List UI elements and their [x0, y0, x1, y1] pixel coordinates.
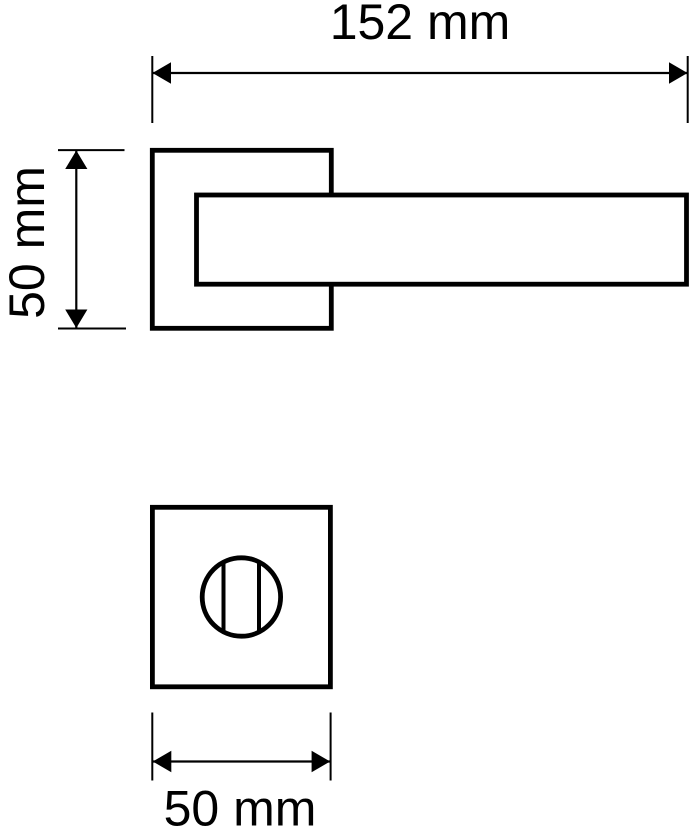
svg-text:50 mm: 50 mm	[0, 166, 55, 319]
svg-text:152 mm: 152 mm	[330, 0, 511, 50]
svg-text:50 mm: 50 mm	[164, 781, 317, 834]
